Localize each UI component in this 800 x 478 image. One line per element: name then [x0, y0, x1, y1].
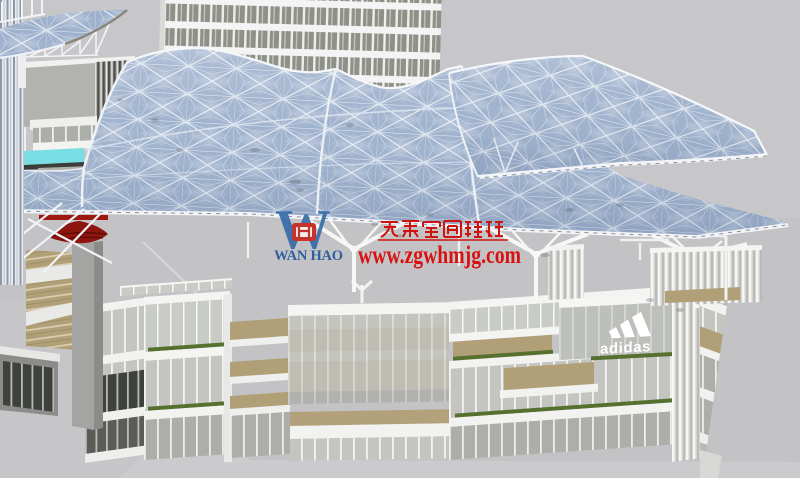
svg-text:WAN HAO: WAN HAO	[274, 248, 343, 264]
svg-text:www.zgwhmjg.com: www.zgwhmjg.com	[358, 242, 521, 269]
